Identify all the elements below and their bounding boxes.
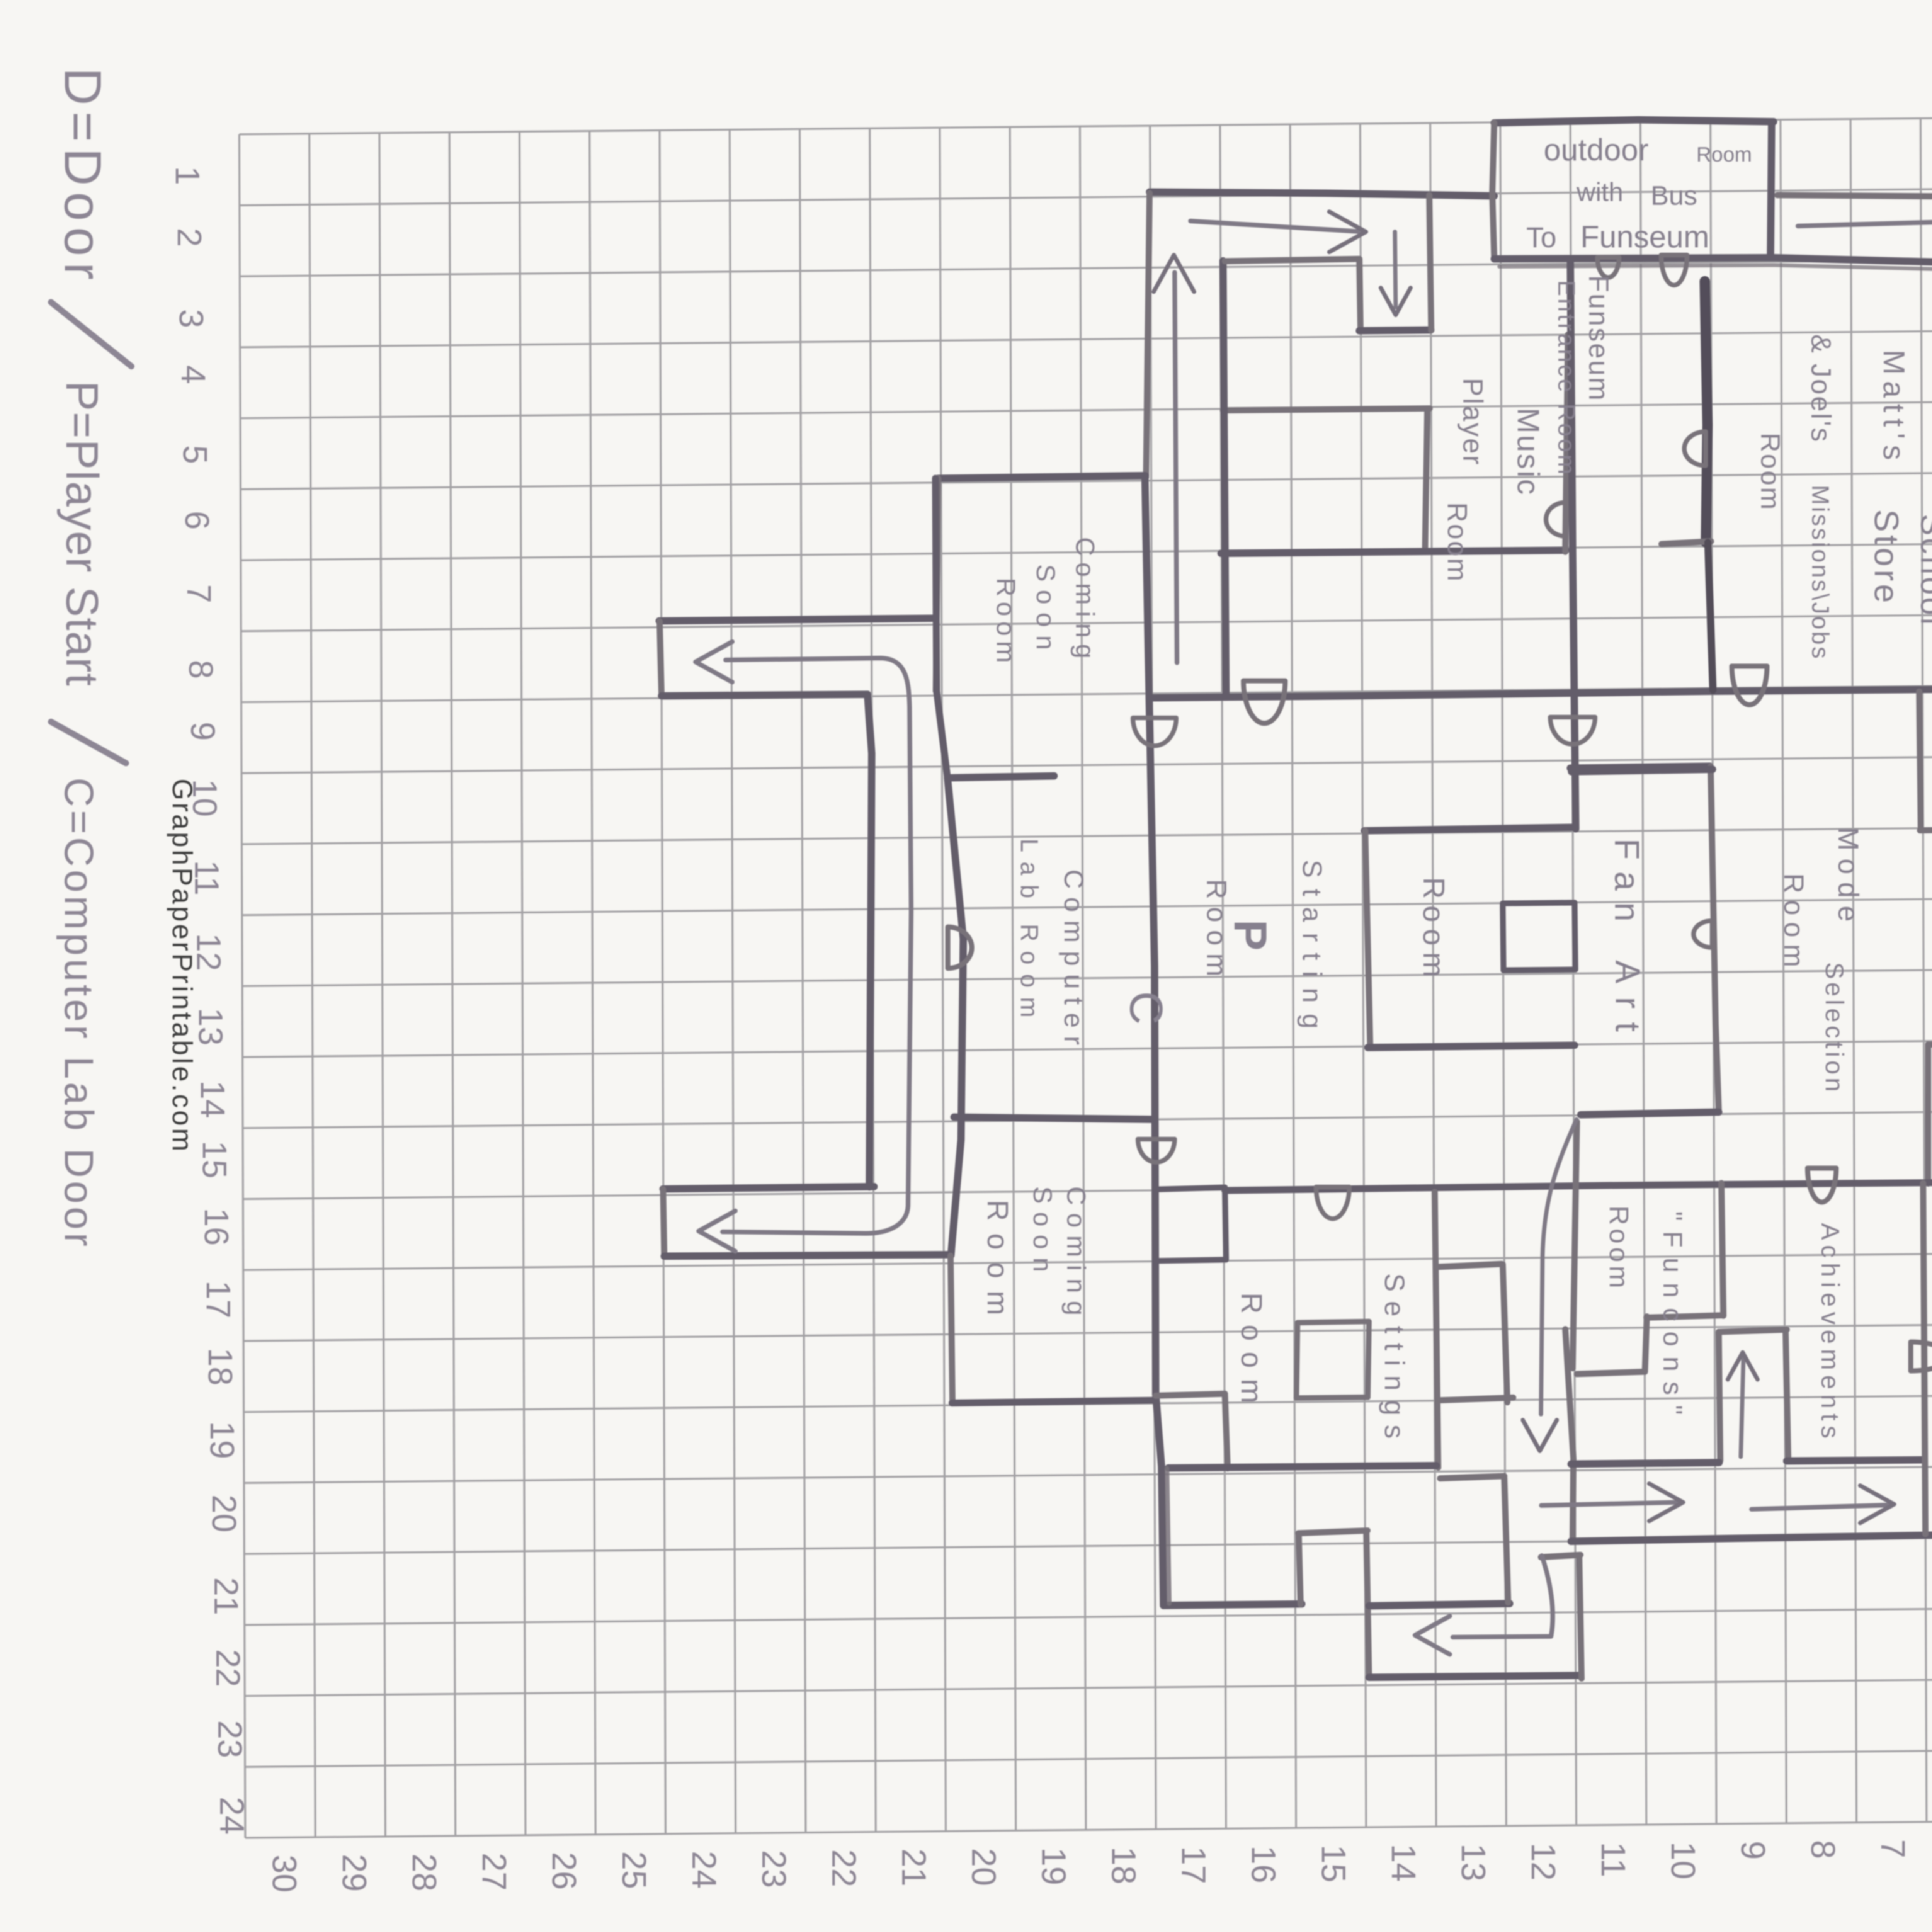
- svg-text:13: 13: [1454, 1844, 1493, 1881]
- svg-text:Soon: Soon: [1028, 1186, 1057, 1280]
- svg-text:28: 28: [405, 1854, 444, 1891]
- svg-text:26: 26: [545, 1852, 583, 1890]
- svg-text:30: 30: [265, 1855, 304, 1893]
- svg-text:24: 24: [213, 1797, 251, 1835]
- svg-text:11: 11: [188, 860, 226, 895]
- svg-text:9: 9: [1734, 1841, 1772, 1860]
- svg-text:Settings: Settings: [1379, 1273, 1410, 1448]
- svg-text:Coming: Coming: [1070, 537, 1100, 665]
- svg-text:Room: Room: [1235, 1293, 1268, 1414]
- svg-text:23: 23: [755, 1850, 793, 1888]
- svg-text:Bus: Bus: [1651, 180, 1697, 211]
- svg-text:C: C: [1120, 991, 1172, 1025]
- svg-text:Fan: Fan: [1607, 838, 1646, 933]
- svg-text:Computer: Computer: [1059, 869, 1089, 1053]
- svg-text:10: 10: [186, 779, 224, 817]
- svg-text:with: with: [1576, 177, 1623, 207]
- svg-text:20: 20: [965, 1848, 1003, 1886]
- svg-text:Room: Room: [981, 1200, 1014, 1328]
- svg-text:23: 23: [211, 1720, 249, 1758]
- svg-text:20: 20: [205, 1495, 243, 1532]
- svg-text:To: To: [1526, 221, 1556, 253]
- svg-text:29: 29: [335, 1854, 374, 1892]
- svg-text:Missions\Jobs: Missions\Jobs: [1807, 485, 1833, 660]
- svg-text:Funseum: Funseum: [1583, 275, 1614, 402]
- svg-text:1: 1: [168, 166, 207, 185]
- svg-text:17: 17: [1175, 1846, 1213, 1884]
- svg-text:14: 14: [1384, 1844, 1423, 1882]
- svg-text:22: 22: [209, 1649, 247, 1687]
- svg-text:outdoor: outdoor: [1544, 133, 1648, 167]
- svg-text:Entrance Room: Entrance Room: [1553, 280, 1580, 477]
- svg-text:& Joel's: & Joel's: [1805, 334, 1836, 443]
- svg-text:2: 2: [170, 228, 209, 247]
- svg-text:8: 8: [182, 660, 220, 679]
- svg-text:Room: Room: [1696, 143, 1752, 166]
- svg-text:19: 19: [1035, 1847, 1073, 1885]
- svg-text:Selection: Selection: [1820, 962, 1849, 1095]
- svg-text:14: 14: [194, 1080, 232, 1118]
- svg-text:12: 12: [1524, 1843, 1563, 1881]
- svg-text:21: 21: [207, 1577, 245, 1615]
- svg-text:Mode: Mode: [1832, 827, 1864, 929]
- svg-text:Room: Room: [1778, 873, 1809, 974]
- svg-text:Store: Store: [1867, 509, 1906, 606]
- svg-text:4: 4: [174, 365, 213, 384]
- svg-text:3: 3: [172, 309, 211, 328]
- svg-text:16: 16: [197, 1208, 236, 1246]
- svg-text:27: 27: [475, 1853, 514, 1891]
- svg-text:Coming: Coming: [1061, 1186, 1091, 1323]
- svg-text:Matt's: Matt's: [1877, 350, 1911, 466]
- svg-text:Music: Music: [1511, 408, 1546, 496]
- svg-text:D=Door: D=Door: [54, 68, 112, 286]
- svg-text:16: 16: [1245, 1845, 1283, 1883]
- svg-text:12: 12: [190, 933, 228, 971]
- svg-text:7: 7: [1874, 1839, 1912, 1858]
- svg-text:21: 21: [895, 1849, 933, 1886]
- svg-text:Starting: Starting: [1297, 860, 1327, 1039]
- svg-text:17: 17: [199, 1281, 238, 1318]
- svg-text:7: 7: [180, 584, 218, 603]
- svg-text:25: 25: [615, 1851, 653, 1889]
- svg-text:Room: Room: [1417, 877, 1451, 984]
- svg-text:18: 18: [201, 1348, 240, 1386]
- svg-text:P: P: [1225, 920, 1276, 951]
- svg-text:Player: Player: [1457, 378, 1488, 466]
- svg-text:Room: Room: [1201, 879, 1232, 984]
- svg-text:18: 18: [1105, 1847, 1143, 1884]
- svg-text:6: 6: [178, 511, 216, 530]
- svg-text:15: 15: [196, 1141, 234, 1179]
- svg-text:22: 22: [825, 1849, 863, 1887]
- svg-text:15: 15: [1315, 1845, 1353, 1883]
- svg-text:19: 19: [203, 1421, 241, 1459]
- svg-text:Room: Room: [1442, 502, 1473, 583]
- svg-text:24: 24: [685, 1851, 723, 1889]
- svg-text:Soon: Soon: [1031, 564, 1060, 658]
- svg-text:Art: Art: [1608, 960, 1647, 1045]
- svg-text:Room: Room: [991, 578, 1020, 668]
- svg-text:C=Computer Lab Door: C=Computer Lab Door: [56, 777, 102, 1249]
- svg-text:8: 8: [1804, 1840, 1842, 1859]
- svg-text:Achievements: Achievements: [1816, 1223, 1845, 1444]
- svg-text:10: 10: [1664, 1842, 1702, 1879]
- svg-text:13: 13: [192, 1008, 230, 1046]
- svg-text:Room: Room: [1604, 1206, 1634, 1292]
- svg-text:11: 11: [1594, 1842, 1633, 1877]
- svg-text:P=Player Start: P=Player Start: [56, 381, 107, 687]
- svg-text:9: 9: [184, 722, 222, 741]
- svg-text:Room: Room: [1755, 433, 1786, 511]
- svg-text:Lab Room: Lab Room: [1015, 838, 1043, 1027]
- svg-text:Funseum: Funseum: [1580, 219, 1709, 254]
- svg-text:School: School: [1914, 514, 1932, 627]
- svg-text:"Funcons": "Funcons": [1658, 1211, 1688, 1425]
- svg-text:5: 5: [176, 445, 214, 464]
